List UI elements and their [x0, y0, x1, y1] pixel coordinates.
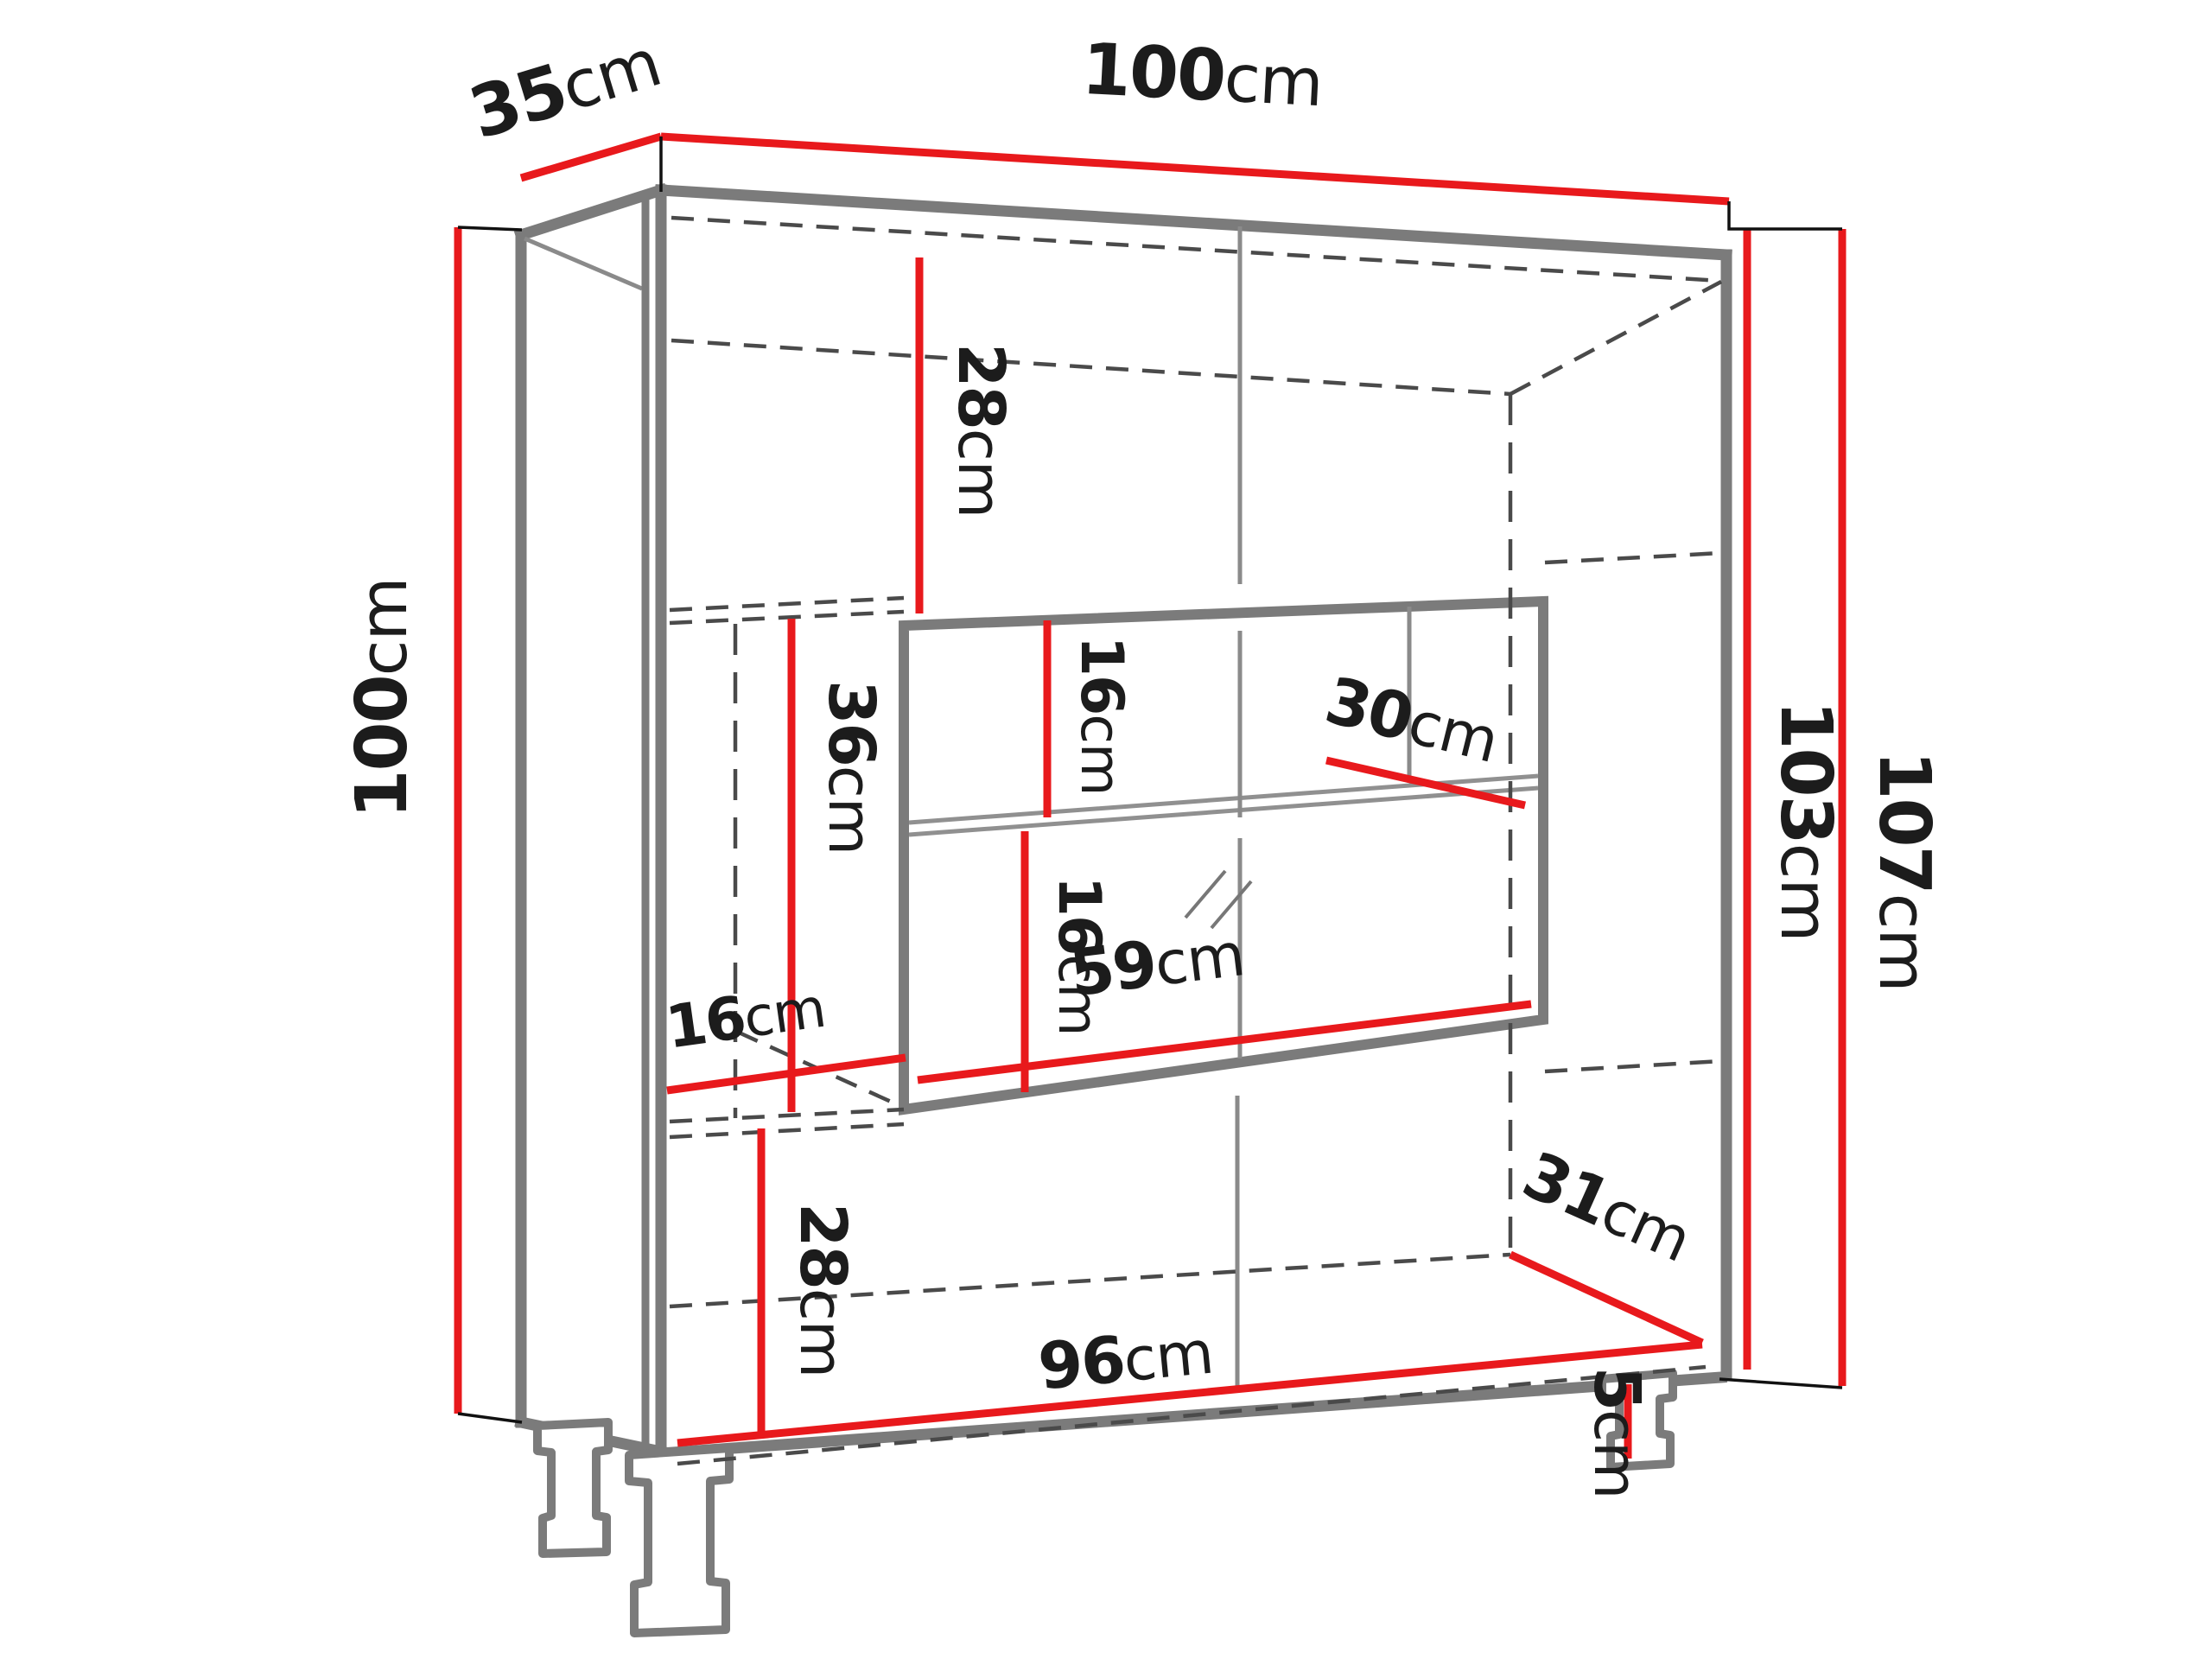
back-left-foot [537, 1422, 608, 1554]
top-panel-back-right-edge [1510, 282, 1721, 394]
side-panel-inner-line [524, 238, 642, 289]
shelf2-top-edge-left [670, 1109, 904, 1122]
ext-100-height-bottom [458, 1414, 522, 1422]
feet [537, 1373, 1673, 1633]
shelf2-edge-right [1545, 1061, 1721, 1071]
dim-label-bottom-depth-31cm: 31cm [1512, 1138, 1702, 1277]
ext-bottom-right [1719, 1379, 1842, 1388]
shelf2-bottom-edge-left [670, 1124, 904, 1137]
side-panel-top-edge [521, 190, 661, 235]
dim-label-box-upper-16cm: 16cm [1067, 636, 1135, 796]
dim-label-height-107cm: 107cm [1863, 751, 1945, 992]
dim-label-top-shelf-28cm: 28cm [944, 343, 1018, 518]
dim-label-left-16cm: 16cm [662, 973, 829, 1063]
dim-label-height-100cm: 100cm [341, 578, 423, 819]
dim-label-foot-5cm: 5cm [1580, 1367, 1654, 1499]
dim-line-16-left [667, 1058, 906, 1090]
dim-label-height-103cm: 103cm [1764, 701, 1847, 942]
ext-top-right-bracket [1729, 201, 1842, 229]
shelf1-back-edge-right [1545, 553, 1721, 563]
cabinet-dimension-diagram: 35cm 100cm 100cm 103cm 107cm 28cm 16cm 3… [0, 0, 2212, 1659]
dim-line-100-width [661, 137, 1729, 201]
dim-label-box-height-36cm: 36cm [814, 680, 888, 855]
display-box-frame [904, 601, 1543, 1109]
front-top-edge [661, 190, 1726, 255]
back-wall-top-edge [671, 340, 1510, 394]
dim-label-bottom-shelf-28cm: 28cm [785, 1203, 860, 1377]
shelf1-front-edge-left [670, 612, 904, 623]
dim-label-depth-35cm: 35cm [461, 21, 670, 156]
display-box [904, 601, 1543, 1109]
shelf1-back-edge-left [670, 598, 904, 610]
dim-label-width-100cm: 100cm [1080, 29, 1325, 123]
diagram-stage: 35cm 100cm 100cm 103cm 107cm 28cm 16cm 3… [0, 0, 2212, 1659]
ext-100-height-top [458, 227, 522, 230]
front-left-foot [629, 1448, 729, 1633]
dim-line-35-depth [521, 137, 661, 178]
